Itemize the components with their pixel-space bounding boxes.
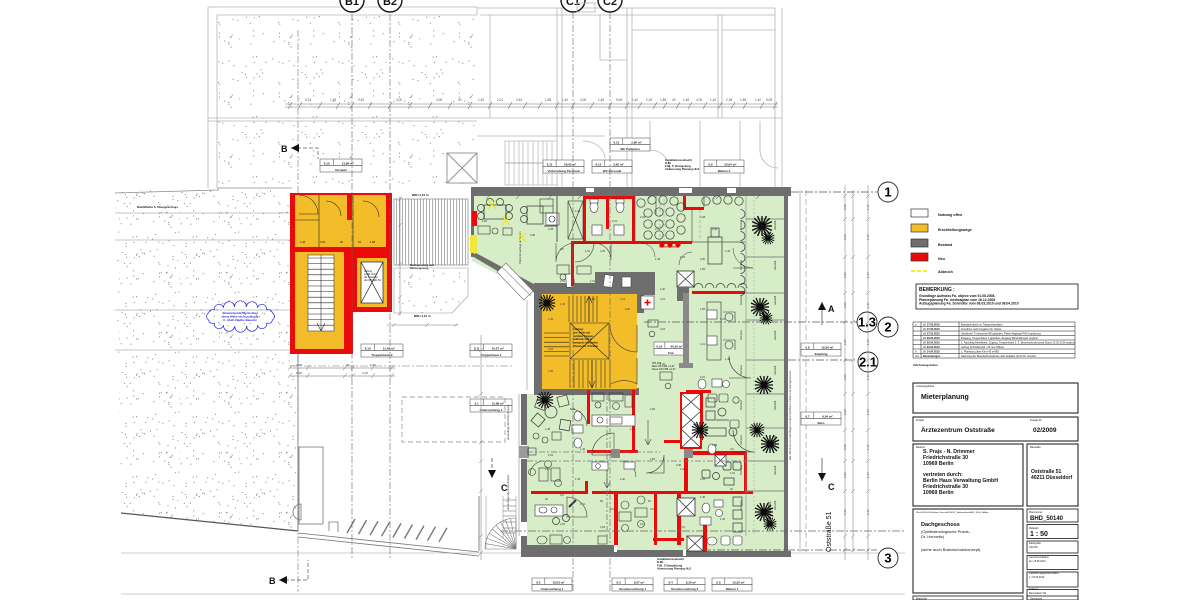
svg-text:2,26: 2,26: [560, 522, 566, 526]
svg-text:2,38: 2,38: [676, 464, 681, 467]
svg-text:5,24: 5,24: [305, 98, 311, 102]
svg-text:Neu: Neu: [938, 257, 945, 261]
svg-text:1,48: 1,48: [575, 209, 581, 213]
svg-text:Aufzug Schindler/Apl - 04 neu: Aufzug Schindler/Apl - 04 neu Offerte: [961, 345, 1004, 349]
svg-text:2,38: 2,38: [296, 363, 302, 367]
svg-text:WC Patienten: WC Patienten: [620, 147, 640, 151]
svg-text:Abstellfl.: Abstellfl.: [773, 260, 777, 270]
svg-text:6,07 m²: 6,07 m²: [634, 581, 644, 585]
svg-text:Dachfläche 5. Obergeschoss: Dachfläche 5. Obergeschoss: [137, 205, 178, 209]
svg-text:11,48 m²: 11,48 m²: [383, 347, 395, 351]
svg-text:Brandschutztür im Treppenhausk: Brandschutztür im Treppenhauskern: [961, 322, 1003, 326]
svg-text:1: 1: [884, 185, 891, 200]
svg-text:2,26: 2,26: [843, 302, 847, 308]
svg-text:1,85: 1,85: [650, 457, 656, 461]
svg-text:1,85: 1,85: [660, 98, 666, 102]
svg-text:Abstellfl.: Abstellfl.: [773, 500, 777, 510]
svg-text:6.10: 6.10: [657, 345, 663, 349]
svg-text:6.8: 6.8: [805, 346, 810, 350]
svg-text:2,26: 2,26: [843, 272, 847, 278]
svg-text:Abbruch: Abbruch: [938, 270, 953, 274]
svg-text:1,48: 1,48: [330, 98, 336, 102]
svg-text:2,01: 2,01: [497, 98, 503, 102]
svg-text:Terrasse: Terrasse: [739, 434, 743, 445]
svg-text:02/2009: 02/2009: [1033, 427, 1057, 434]
svg-text:d / 08.05.2010: d / 08.05.2010: [923, 336, 940, 340]
svg-text:5,48: 5,48: [296, 371, 302, 375]
svg-text:Treppenhaus 2: Treppenhaus 2: [371, 353, 393, 357]
svg-text:1,85: 1,85: [700, 267, 706, 271]
svg-text:1,48: 1,48: [300, 240, 306, 244]
svg-text:1,48: 1,48: [725, 249, 731, 253]
svg-text:(Ophthalmologische Praxis -Dr.: (Ophthalmologische Praxis -Dr. Horowitz): [921, 529, 972, 539]
svg-text:6.10: 6.10: [365, 347, 371, 351]
svg-text:3,8: 3,8: [610, 507, 614, 511]
svg-text:Terrasse: Terrasse: [739, 219, 743, 230]
svg-text:5,05: 5,05: [616, 98, 622, 102]
svg-text:1,47: 1,47: [866, 509, 870, 515]
svg-text:2,26: 2,26: [843, 409, 847, 415]
svg-text:4,05: 4,05: [580, 98, 586, 102]
svg-text:Eingang, Treppenhaus 2 geänder: Eingang, Treppenhaus 2 geändert, Eingang…: [961, 336, 1038, 340]
svg-text:6.10: 6.10: [324, 162, 330, 166]
svg-text:2,80 m²: 2,80 m²: [631, 141, 641, 145]
svg-text:19,36 m²: 19,36 m²: [821, 346, 833, 350]
svg-text:2,38: 2,38: [530, 234, 535, 237]
svg-text:2,38: 2,38: [548, 227, 554, 231]
svg-text:Ind.: Ind.: [915, 354, 920, 358]
svg-text:Abstellfl.: Abstellfl.: [773, 365, 777, 375]
svg-text:C: C: [828, 482, 835, 492]
svg-text:4,05: 4,05: [696, 98, 702, 102]
svg-text:Vorbereitung Personal: Vorbereitung Personal: [548, 169, 580, 173]
svg-text:1,85: 1,85: [590, 298, 595, 301]
svg-text:Grundriss nach Angaben Dr. Wei: Grundriss nach Angaben Dr. Weiss: [961, 327, 1002, 331]
svg-text:Abstellfl.: Abstellfl.: [773, 295, 777, 305]
svg-text:BEMERKUNG :: BEMERKUNG :: [919, 287, 955, 293]
svg-text:1,85: 1,85: [545, 98, 551, 102]
svg-text:1,47: 1,47: [866, 302, 870, 308]
svg-text:1,40: 1,40: [560, 302, 566, 306]
svg-text:1,48: 1,48: [575, 477, 581, 481]
svg-text:Voruntersuchung 2: Voruntersuchung 2: [671, 587, 699, 591]
svg-text:6.13: 6.13: [595, 163, 601, 167]
svg-text:Geprüft/Freigegeben/Datums / 1: Geprüft/Freigegeben/Datums / 15.05.2010: [1029, 572, 1059, 579]
svg-text:Projekt: Projekt: [916, 418, 924, 422]
svg-text:40,10 m²: 40,10 m²: [670, 345, 682, 349]
svg-text:1,48: 1,48: [545, 427, 551, 431]
svg-text:d / 17.05.2010: d / 17.05.2010: [923, 331, 940, 335]
svg-text:4,05: 4,05: [600, 525, 606, 529]
svg-text:1,01: 1,01: [620, 297, 626, 301]
svg-text:3,8: 3,8: [560, 247, 564, 251]
svg-text:1,47: 1,47: [866, 339, 870, 345]
svg-text:6.1: 6.1: [475, 402, 480, 406]
svg-text:Steckbrief, Türschema MD geänd: Steckbrief, Türschema MD geändert, Plank…: [961, 331, 1041, 335]
svg-text:2,26: 2,26: [625, 308, 630, 311]
svg-text:6.4: 6.4: [668, 581, 673, 585]
svg-text:1,40: 1,40: [478, 98, 484, 102]
svg-text:2,26: 2,26: [843, 234, 847, 240]
svg-text:1,01: 1,01: [585, 249, 591, 253]
svg-text:1,47: 1,47: [866, 234, 870, 240]
svg-text:1,47: 1,47: [866, 472, 870, 478]
svg-text:6.12: 6.12: [613, 141, 619, 145]
svg-text:6,30 m²: 6,30 m²: [686, 581, 696, 585]
svg-text:1,48: 1,48: [725, 357, 731, 361]
svg-text:außenliegende Außentreppe: außenliegende Außentreppe: [506, 404, 510, 440]
svg-text:3,8: 3,8: [730, 447, 734, 451]
svg-text:1,40: 1,40: [712, 227, 718, 231]
svg-text:1,40: 1,40: [755, 98, 761, 102]
svg-text:B: B: [281, 144, 288, 154]
svg-text:1 : 50: 1 : 50: [1030, 531, 1048, 538]
svg-text:Leistungsphase: Leistungsphase: [916, 384, 935, 388]
svg-text:Dateigröße100/100: Dateigröße100/100: [1029, 542, 1041, 549]
svg-text:Abstellfl.: Abstellfl.: [773, 330, 777, 340]
svg-text:2,01: 2,01: [700, 375, 706, 379]
svg-text:Warten 1: Warten 1: [726, 587, 739, 591]
svg-text:Gezeichnet/Datumak / 15.05.201: Gezeichnet/Datumak / 15.05.2010: [1029, 556, 1049, 563]
svg-text:1,85: 1,85: [700, 307, 706, 311]
svg-text:1,47: 1,47: [866, 272, 870, 278]
svg-text:Abstellfl.: Abstellfl.: [773, 220, 777, 230]
svg-text:1,01: 1,01: [590, 279, 596, 283]
svg-text:2,01: 2,01: [612, 219, 618, 223]
svg-text:1,88: 1,88: [370, 240, 376, 244]
svg-text:Nachtrag der Brandschutzwände: Nachtrag der Brandschutzwände nach Aufga…: [961, 354, 1037, 358]
svg-text:6.7: 6.7: [805, 415, 810, 419]
svg-text:1,48: 1,48: [700, 496, 705, 499]
svg-text:Empfang: Empfang: [815, 352, 828, 356]
svg-text:Terrasse: Terrasse: [739, 464, 743, 475]
svg-text:Abweichende Werte überdiese Hö: Abweichende Werte überdiese Höhe nicht z…: [222, 311, 259, 322]
svg-text:InstallationsschachtH,65FsB. 5: InstallationsschachtH,65FsB. 5. Brüngsbe…: [665, 158, 699, 171]
svg-text:2,26: 2,26: [650, 408, 655, 411]
svg-text:15/13 m²: 15/13 m²: [552, 581, 564, 585]
svg-text:3,05: 3,05: [320, 240, 326, 244]
svg-text:4,05: 4,05: [436, 98, 442, 102]
svg-text:1,40: 1,40: [660, 288, 665, 291]
svg-text:Mieterplanung: Mieterplanung: [921, 394, 969, 401]
svg-text:Erschließungswege: Erschließungswege: [938, 228, 972, 232]
svg-text:2,26: 2,26: [843, 472, 847, 478]
svg-text:Terrasse: Terrasse: [739, 399, 743, 410]
svg-text:2,26: 2,26: [640, 215, 646, 219]
svg-text:1. Planktung über Kern 45 m²/B: 1. Planktung über Kern 45 m²/BS: [961, 349, 999, 353]
svg-text:1,82: 1,82: [370, 363, 376, 367]
svg-text:außenliegende Außentreppe: außenliegende Außentreppe: [506, 474, 510, 510]
svg-text:Abstellfl.: Abstellfl.: [773, 465, 777, 475]
svg-text:3,8: 3,8: [560, 494, 564, 497]
svg-text:1,48: 1,48: [683, 98, 689, 102]
svg-text:1,01: 1,01: [730, 472, 735, 475]
svg-text:B2: B2: [383, 0, 397, 8]
svg-text:15,88 m²: 15,88 m²: [492, 402, 504, 406]
svg-text:2,26: 2,26: [660, 327, 666, 331]
svg-text:1,47: 1,47: [866, 444, 870, 450]
svg-text:2,26: 2,26: [843, 509, 847, 515]
svg-text:Treppenhaus 1: Treppenhaus 1: [480, 353, 502, 357]
svg-text:d / 17.05.2010: d / 17.05.2010: [923, 322, 940, 326]
svg-text:6.3: 6.3: [616, 581, 621, 585]
svg-text:Dachgeschoss: Dachgeschoss: [921, 522, 960, 528]
svg-text:2,26: 2,26: [843, 204, 847, 210]
svg-text:WC Personal: WC Personal: [603, 169, 622, 173]
svg-text:Terrasse: Terrasse: [739, 329, 743, 340]
svg-text:Büro: Büro: [818, 421, 825, 425]
svg-text:6.9: 6.9: [708, 163, 713, 167]
svg-text:d / 20.04.2010: d / 20.04.2010: [923, 345, 940, 349]
svg-text:d / 14.04.2010: d / 14.04.2010: [923, 349, 940, 353]
svg-text:4,05: 4,05: [700, 258, 705, 261]
svg-text:C2: C2: [603, 0, 617, 8]
svg-text:InstallationsschachtH,6KFsB. 5: InstallationsschachtH,6KFsB. 5 Steigleit…: [657, 557, 691, 571]
svg-text:Untersuchung 1: Untersuchung 1: [480, 408, 503, 412]
svg-text:Voruntersuchung 1: Voruntersuchung 1: [619, 587, 647, 591]
svg-text:2,01: 2,01: [660, 297, 666, 301]
svg-text:Bemerkungen: Bemerkungen: [923, 354, 941, 358]
svg-text:13,35 m²: 13,35 m²: [732, 581, 744, 585]
svg-text:3,62 m²: 3,62 m²: [613, 163, 623, 167]
svg-text:1,40: 1,40: [632, 98, 638, 102]
svg-text:1,85: 1,85: [740, 98, 746, 102]
svg-text:1,01: 1,01: [700, 342, 706, 346]
svg-text:5,05: 5,05: [766, 98, 772, 102]
svg-text:40: 40: [346, 363, 350, 367]
svg-text:Projekt-Nr: Projekt-Nr: [1030, 418, 1042, 422]
svg-text:Bestand: Bestand: [938, 243, 952, 247]
svg-text:2,01: 2,01: [548, 454, 553, 457]
svg-text:Oststraße 51: Oststraße 51: [826, 511, 833, 552]
svg-text:1,40: 1,40: [620, 478, 625, 481]
svg-text:BHD_50140: BHD_50140: [1030, 516, 1064, 522]
svg-text:Plannummer: Plannummer: [1029, 511, 1043, 514]
svg-text:2,26: 2,26: [843, 374, 847, 380]
svg-text:2,38: 2,38: [700, 215, 706, 219]
svg-text:1,85: 1,85: [548, 369, 554, 373]
svg-text:2: 2: [884, 320, 891, 335]
svg-text:S. Prajs - N. DrimmerFriedrich: S. Prajs - N. DrimmerFriedrichstraße 301…: [923, 449, 998, 496]
svg-text:4,04: 4,04: [482, 220, 487, 223]
svg-text:1,48: 1,48: [598, 98, 604, 102]
svg-text:1,40: 1,40: [710, 98, 716, 102]
svg-text:2,26: 2,26: [646, 98, 652, 102]
svg-text:B1: B1: [345, 0, 359, 8]
svg-text:2,38: 2,38: [726, 98, 732, 102]
svg-text:10,27 m²: 10,27 m²: [492, 347, 504, 351]
svg-text:1,40: 1,40: [358, 98, 364, 102]
svg-text:(siehe auch Brandschutzkonzept: (siehe auch Brandschutzkonzept): [921, 547, 981, 552]
svg-text:d / 29.04.2010: d / 29.04.2010: [923, 340, 940, 344]
svg-text:Terrasse: Terrasse: [739, 364, 743, 375]
svg-text:1,40: 1,40: [720, 517, 726, 521]
svg-text:6.5: 6.5: [716, 581, 721, 585]
svg-text:9,04 m²: 9,04 m²: [822, 415, 832, 419]
svg-text:3,40: 3,40: [516, 98, 522, 102]
svg-text:BRH 1,10 m: BRH 1,10 m: [412, 193, 429, 197]
svg-text:3,8: 3,8: [640, 522, 644, 526]
svg-text:2,26: 2,26: [843, 339, 847, 345]
svg-text:6.2: 6.2: [536, 581, 541, 585]
svg-text:Maßstab: Maßstab: [1029, 527, 1039, 530]
svg-text:Baustelle: Baustelle: [1030, 445, 1041, 449]
svg-text:4,05: 4,05: [600, 249, 606, 253]
svg-text:29,63 m²: 29,63 m²: [564, 163, 576, 167]
svg-text:d / 17.05.2010: d / 17.05.2010: [923, 327, 940, 331]
svg-text:A: A: [828, 304, 835, 314]
svg-text:alle offenbare Fensterflügel m: alle offenbare Fensterflügel mit abschli…: [788, 370, 792, 460]
svg-text:SoftwareMicrostation V8i: SoftwareMicrostation V8i: [1029, 588, 1046, 595]
svg-text:Untersuchung 1: Untersuchung 1: [541, 587, 564, 591]
svg-text:1,47: 1,47: [866, 374, 870, 380]
svg-text:40: 40: [672, 98, 676, 102]
svg-text:1,40: 1,40: [548, 317, 554, 321]
svg-text:Abstellfl.: Abstellfl.: [773, 400, 777, 410]
svg-text:Warten 2: Warten 2: [718, 169, 731, 173]
svg-text:Vorraum: Vorraum: [335, 168, 347, 172]
svg-text:1,40: 1,40: [580, 447, 586, 451]
svg-text:1. Nachtrag Abriebbest, Zugang: 1. Nachtrag Abriebbest, Zugang, Treppenh…: [961, 340, 1075, 344]
svg-text:Ärztezentrum Oststraße: Ärztezentrum Oststraße: [921, 426, 995, 434]
svg-text:1,47: 1,47: [866, 409, 870, 415]
svg-text:3: 3: [884, 551, 891, 566]
svg-text:1,88: 1,88: [712, 444, 717, 447]
svg-text:Terrasse: Terrasse: [739, 294, 743, 305]
svg-text:23,04 m²: 23,04 m²: [724, 163, 736, 167]
svg-text:4,05: 4,05: [548, 347, 554, 351]
svg-text:A: A: [915, 349, 917, 353]
svg-text:Terrasse: Terrasse: [739, 499, 743, 510]
svg-text:2,01: 2,01: [560, 279, 566, 283]
svg-text:B: B: [269, 576, 276, 586]
svg-text:Nutzung offen: Nutzung offen: [938, 213, 962, 217]
svg-text:C1: C1: [566, 0, 580, 8]
svg-text:3,18: 3,18: [362, 371, 368, 375]
svg-text:1,48: 1,48: [655, 257, 661, 261]
svg-text:Oststraße 5140211 Düsseldorf: Oststraße 5140211 Düsseldorf: [1031, 469, 1072, 481]
svg-text:1.3: 1.3: [858, 315, 876, 330]
svg-text:Plan:FU050-B Rohrbau Oberstell: Plan:FU050-B Rohrbau Oberstell/G5032_Spl…: [916, 511, 989, 514]
svg-text:4,00: 4,00: [396, 98, 402, 102]
svg-text:Zeichnungsindex: Zeichnungsindex: [913, 363, 938, 367]
svg-text:30: 30: [458, 98, 462, 102]
svg-text:BRH 1,10 m: BRH 1,10 m: [414, 314, 431, 318]
svg-text:6.11: 6.11: [547, 163, 553, 167]
svg-text:Flur: Flur: [668, 351, 674, 355]
svg-text:2,26: 2,26: [843, 444, 847, 450]
svg-text:8.11: 8.11: [474, 347, 480, 351]
svg-text:1,47: 1,47: [866, 204, 870, 210]
svg-text:1,40: 1,40: [562, 98, 568, 102]
